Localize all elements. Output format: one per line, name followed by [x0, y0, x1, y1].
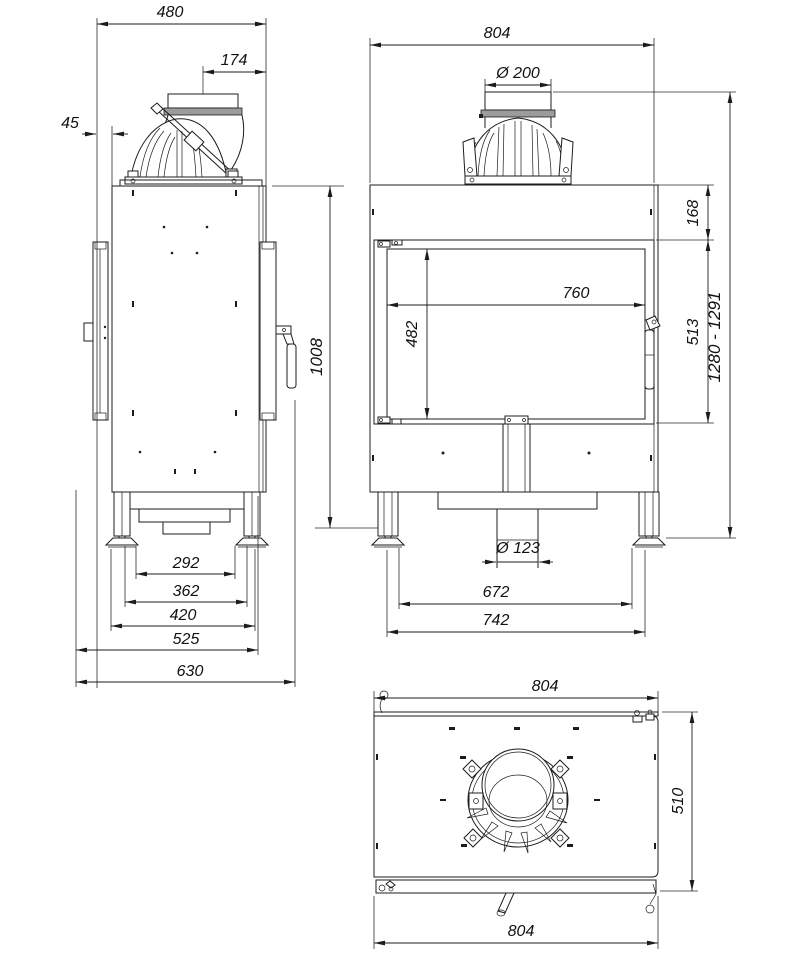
side-door-handle — [260, 242, 296, 420]
dim-label-513: 513 — [685, 319, 702, 346]
dim-label-510: 510 — [670, 788, 687, 815]
dim-front-flue-diameter: Ø 200 — [485, 65, 551, 85]
front-flue-outlet — [463, 79, 573, 184]
dim-front-feet-outer: 742 — [387, 550, 645, 637]
dim-top-overall-width: 804 — [374, 678, 658, 714]
dim-label-804-front: 804 — [484, 25, 511, 42]
dim-front-top-to-door: 168 — [656, 185, 714, 240]
dim-label-d123: Ø 123 — [495, 540, 540, 557]
dim-label-420: 420 — [170, 607, 197, 624]
top-handle — [497, 893, 514, 916]
dim-label-292: 292 — [172, 555, 200, 572]
side-rear-rail — [84, 242, 108, 420]
dim-label-804-bottom: 804 — [508, 923, 535, 940]
dim-label-630: 630 — [177, 663, 204, 680]
dim-label-760: 760 — [563, 285, 590, 302]
dim-front-feet-inner: 672 — [399, 548, 632, 609]
front-feet — [372, 492, 665, 547]
dim-top-front-width: 804 — [374, 896, 658, 949]
dim-front-air-inlet: Ø 123 — [482, 540, 553, 562]
top-lever — [646, 884, 656, 913]
side-view: 480 174 45 1008 292 362 — [61, 4, 378, 688]
top-view: 804 510 804 — [374, 678, 698, 949]
front-air-inlet — [497, 509, 538, 568]
strip-latch-hardware — [379, 881, 395, 891]
door-hinge-bottom — [378, 417, 401, 424]
dim-label-d200: Ø 200 — [495, 65, 540, 82]
fireplace-technical-drawing: 480 174 45 1008 292 362 — [0, 0, 800, 960]
side-flue-elbow — [125, 66, 244, 184]
dim-front-glass-width: 760 — [387, 285, 645, 305]
dim-label-174: 174 — [221, 52, 248, 69]
dim-label-45: 45 — [61, 115, 79, 132]
top-flue-collar — [463, 749, 569, 853]
side-body — [84, 180, 296, 534]
dim-label-480: 480 — [157, 4, 184, 21]
front-view: 804 Ø 200 1280 - 1291 168 513 760 — [370, 25, 736, 637]
door-hinge-top — [378, 240, 402, 247]
dim-label-362: 362 — [173, 583, 200, 600]
dim-label-742: 742 — [483, 612, 510, 629]
technical-drawing-page: 480 174 45 1008 292 362 — [0, 0, 800, 960]
dim-label-482: 482 — [404, 321, 421, 348]
dim-side-rear-clearance: 45 — [61, 115, 128, 186]
top-latch-hook — [380, 691, 388, 713]
dim-label-804-top: 804 — [532, 678, 559, 695]
dim-top-overall-depth: 510 — [660, 712, 698, 891]
top-front-strip — [376, 880, 656, 916]
dim-label-168: 168 — [685, 200, 702, 227]
dim-label-1008: 1008 — [307, 338, 326, 376]
dim-label-525: 525 — [173, 631, 200, 648]
dim-side-flue-offset: 174 — [203, 52, 266, 72]
side-feet — [106, 492, 268, 547]
dim-label-672: 672 — [483, 584, 510, 601]
dim-front-glass-height: 482 — [404, 249, 427, 419]
